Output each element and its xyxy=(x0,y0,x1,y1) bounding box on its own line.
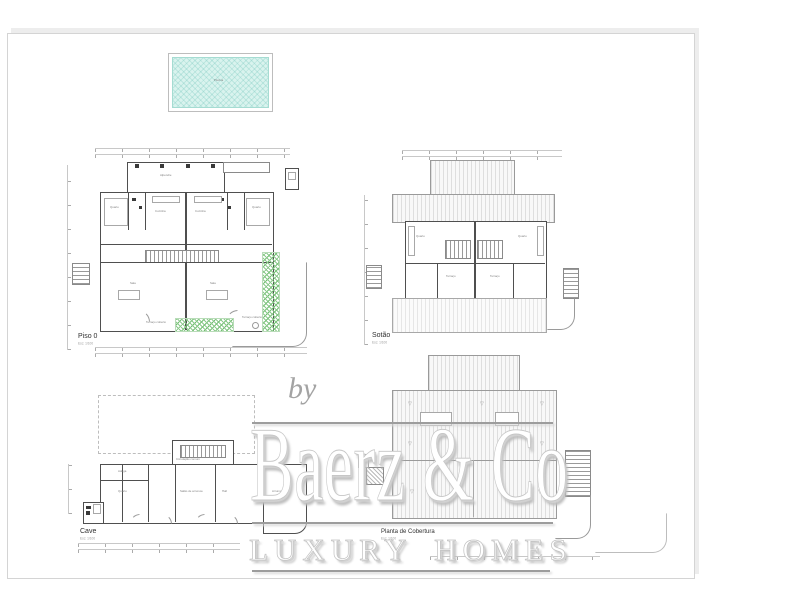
piso0-bath-fixture xyxy=(139,206,142,209)
cobertura-slope-marker: ▽ xyxy=(538,490,542,495)
plan-cobertura: ▽ ▽ ▽ ▽ ▽ ▽ ▽ Planta de Cobertura Esc: 1… xyxy=(340,350,680,565)
piso0-pillar xyxy=(135,164,139,168)
piso0-sofa-left xyxy=(118,290,140,300)
piso0-room-label: Sala xyxy=(210,282,216,285)
sotao-room-label: Terraço xyxy=(490,275,500,278)
piso0-planting-bottom xyxy=(175,318,234,332)
sotao-title: Sotão xyxy=(372,332,390,339)
sotao-stairs-left xyxy=(445,240,471,259)
piso0-dim-top-1 xyxy=(95,148,290,152)
sotao-stairs-right xyxy=(477,240,503,259)
cobertura-slope-marker: ▽ xyxy=(480,402,484,407)
cobertura-roof-lower xyxy=(392,460,557,519)
piso0-bed-left xyxy=(104,198,128,226)
cave-wc-fixture xyxy=(86,506,91,509)
drawing-sheet-page: Piscina Alpendre Quarto Cozinha xyxy=(0,0,800,600)
sotao-wardrobe-right xyxy=(537,226,544,256)
cobertura-slope-marker: ▽ xyxy=(408,442,412,447)
sotao-ext-stair-right xyxy=(563,268,579,299)
cave-wc-fixture xyxy=(86,511,90,515)
pool-label: Piscina xyxy=(214,79,223,82)
cave-room-label: Adega xyxy=(118,470,126,473)
cobertura-roof-main xyxy=(392,390,557,462)
cave-room-label: Circulação comum xyxy=(176,458,200,461)
sotao-subtitle: Esc: 1/100 xyxy=(372,341,387,344)
cave-partition xyxy=(215,464,216,522)
sotao-party-wall xyxy=(474,221,476,298)
piso0-dim-top-2 xyxy=(95,154,290,158)
cave-garage xyxy=(263,464,307,534)
sotao-room-label: Terraço xyxy=(446,275,456,278)
piso0-room-label: Quarto xyxy=(110,206,119,209)
cave-dim-bottom-1 xyxy=(78,543,240,547)
sotao-partition-h xyxy=(405,263,545,264)
cobertura-slope-marker: ▽ xyxy=(408,402,412,407)
cave-stairs xyxy=(180,445,226,458)
cave-partition xyxy=(148,464,149,522)
piso0-partition xyxy=(128,192,129,230)
piso0-circle-marker xyxy=(252,322,259,329)
cobertura-subtitle: Esc: 1/100 xyxy=(381,537,396,540)
cave-room-label: Hall xyxy=(222,490,227,493)
sotao-rooms xyxy=(405,221,547,300)
cobertura-slope-marker: ▽ xyxy=(540,402,544,407)
piso0-partition xyxy=(244,192,245,230)
piso0-room-label: Terraço coberto xyxy=(146,321,166,324)
piso0-pillar xyxy=(211,164,215,168)
cobertura-walkway-outline xyxy=(555,495,591,539)
piso0-bed-right xyxy=(246,198,270,226)
sotao-partition xyxy=(437,263,438,298)
sotao-roof-upper xyxy=(430,160,515,196)
sotao-room-label: Quarto xyxy=(416,235,425,238)
sotao-roof-band xyxy=(392,194,555,223)
pool-plan: Piscina xyxy=(168,53,273,112)
plan-piso0: Alpendre Quarto Cozinha Cozinha Quarto xyxy=(60,140,310,360)
piso0-room-label: Terraço coberto xyxy=(242,316,262,319)
cobertura-dim-bottom xyxy=(430,556,600,560)
cobertura-chimney xyxy=(366,467,384,485)
piso0-terrace-outline xyxy=(232,262,307,347)
piso0-title: Piso 0 xyxy=(78,333,97,340)
sotao-wardrobe-left xyxy=(408,226,415,256)
piso0-room-label: Cozinha xyxy=(155,210,166,213)
piso0-bath-fixture xyxy=(228,206,231,209)
piso0-room-label: Quarto xyxy=(252,206,261,209)
cave-room-label: Salão de arrumos xyxy=(180,490,203,493)
plan-sotao: Quarto Quarto Terraço Terraço Sotão Esc:… xyxy=(358,140,586,365)
sotao-partition xyxy=(513,263,514,298)
cave-room-label: Arrumos xyxy=(272,490,283,493)
piso0-pillar xyxy=(186,164,190,168)
cave-room-label: Quarto xyxy=(118,490,127,493)
piso0-kitchen-counter xyxy=(152,196,180,203)
piso0-partition xyxy=(145,192,146,230)
cobertura-skylight xyxy=(495,412,519,426)
piso0-pillar xyxy=(160,164,164,168)
sotao-deck xyxy=(392,298,547,333)
piso0-kitchen-counter xyxy=(194,196,222,203)
plan-cave: Circulação comum Adega Quarto Salão de a… xyxy=(60,390,320,560)
piso0-room-label: Sala xyxy=(130,282,136,285)
cobertura-skylight xyxy=(420,412,452,426)
piso0-sofa-right xyxy=(206,290,228,300)
sotao-room-label: Quarto xyxy=(518,235,527,238)
cobertura-terrace-outline xyxy=(595,513,667,553)
pool-water xyxy=(172,57,269,108)
piso0-side-wing xyxy=(223,162,270,173)
cobertura-title: Planta de Cobertura xyxy=(381,529,435,535)
piso0-subtitle: Esc: 1/100 xyxy=(78,342,93,345)
piso0-ext-stair-left xyxy=(72,263,90,285)
cobertura-vent xyxy=(358,454,369,468)
cobertura-slope-marker: ▽ xyxy=(410,490,414,495)
piso0-partition xyxy=(227,192,228,230)
sotao-dim-top-1 xyxy=(402,150,562,154)
cave-wc-sink xyxy=(93,504,101,514)
sotao-ext-stair-left xyxy=(366,265,382,289)
cave-dim-bottom-2 xyxy=(78,549,240,553)
piso0-dim-left xyxy=(67,165,71,350)
cave-title: Cave xyxy=(80,528,96,535)
piso0-dim-bottom-1 xyxy=(95,347,307,351)
piso0-room-label: Alpendre xyxy=(160,174,172,177)
piso0-room-label: Cozinha xyxy=(195,210,206,213)
piso0-hall-wall xyxy=(100,244,272,245)
piso0-dim-bottom-2 xyxy=(95,353,307,357)
cobertura-ridge-line xyxy=(473,460,474,517)
cave-subtitle: Esc: 1/100 xyxy=(80,537,95,540)
sotao-terrace-outline xyxy=(547,298,575,330)
cave-dim-left xyxy=(68,464,72,514)
cave-partition xyxy=(175,464,176,522)
cobertura-ext-stair xyxy=(565,450,591,497)
cobertura-roof-top xyxy=(428,355,520,392)
piso0-annex-fixture xyxy=(288,172,296,180)
cobertura-slope-marker: ▽ xyxy=(540,442,544,447)
piso0-bath-fixture xyxy=(132,198,136,201)
cave-partition-h xyxy=(100,480,148,481)
